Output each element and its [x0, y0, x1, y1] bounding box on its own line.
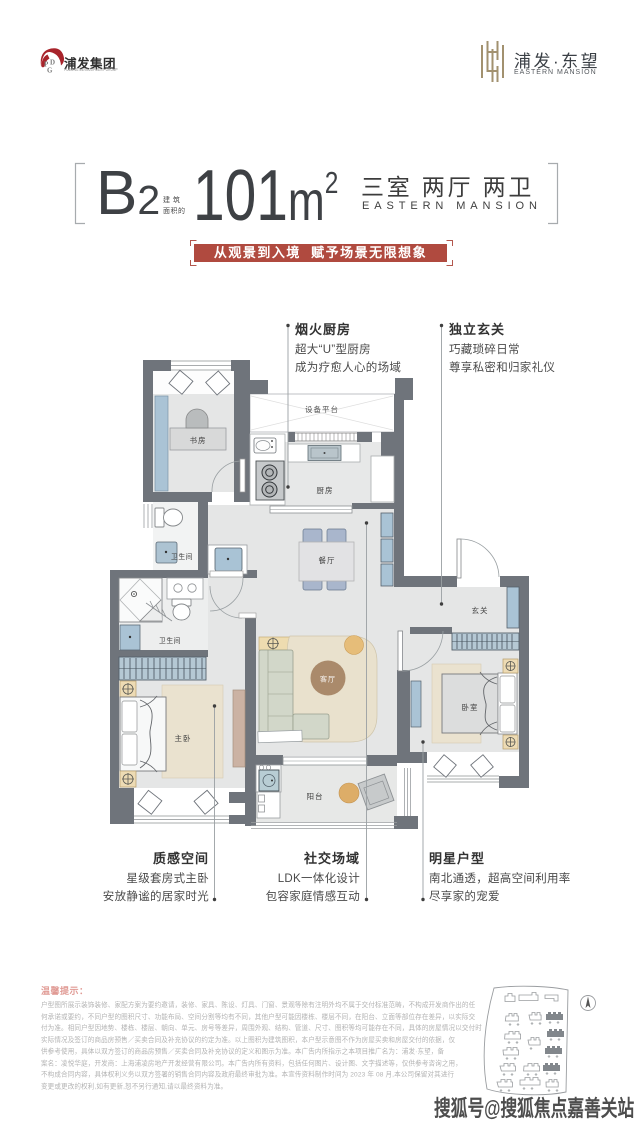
svg-text:厨房: 厨房 [317, 485, 334, 495]
svg-text:设备平台: 设备平台 [305, 404, 339, 414]
svg-text:D: D [50, 59, 55, 67]
svg-text:卫生间: 卫生间 [171, 552, 193, 561]
svg-text:书房: 书房 [190, 435, 207, 445]
svg-text:阳台: 阳台 [307, 791, 324, 801]
svg-text:客厅: 客厅 [320, 675, 336, 684]
svg-text:餐厅: 餐厅 [319, 556, 336, 565]
svg-text:G: G [47, 67, 53, 75]
svg-text:卧室: 卧室 [462, 702, 479, 712]
svg-text:玄关: 玄关 [472, 605, 489, 615]
svg-text:主卧: 主卧 [175, 733, 192, 743]
svg-text:卫生间: 卫生间 [159, 636, 181, 645]
